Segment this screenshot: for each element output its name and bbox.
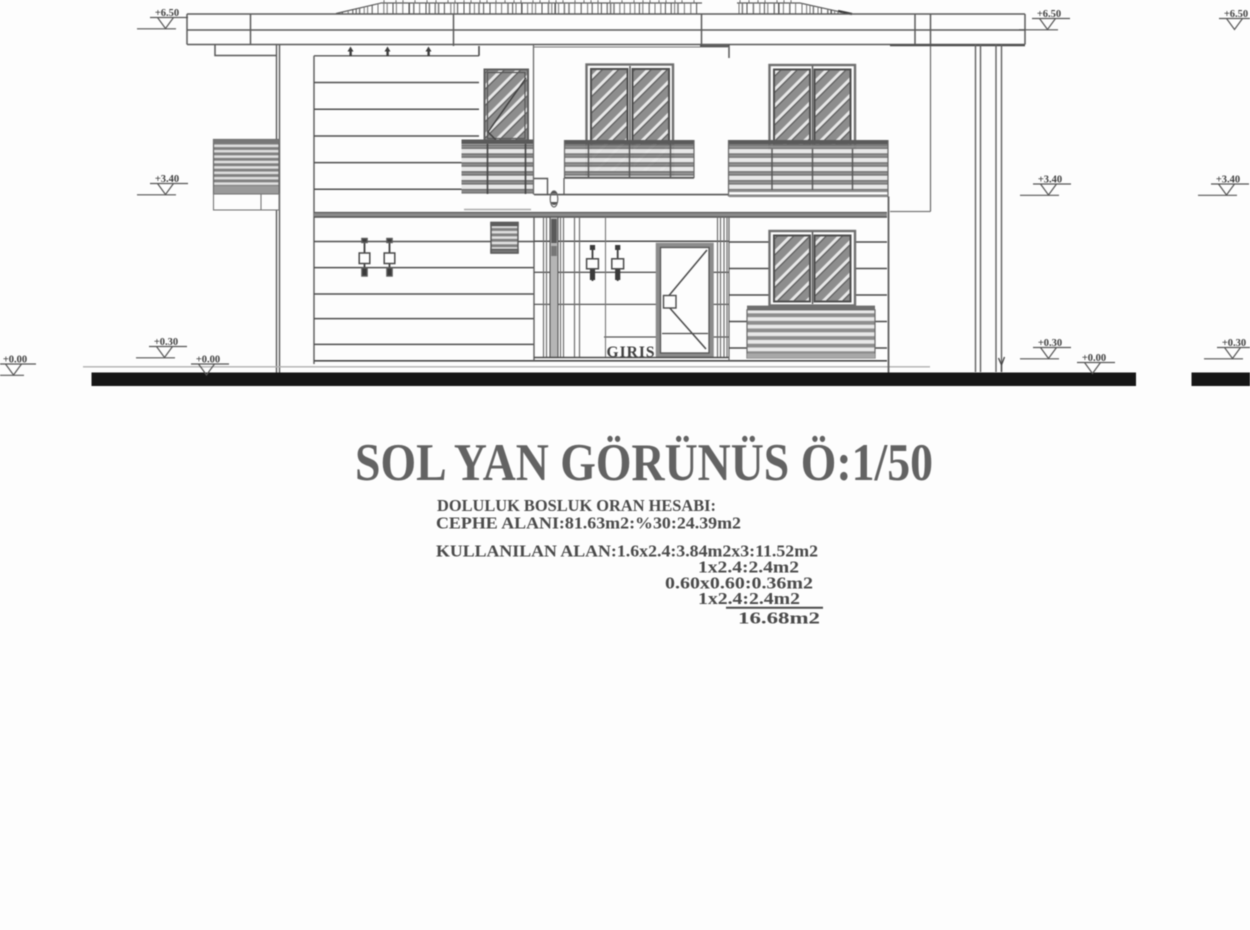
svg-text:GIRIS: GIRIS	[607, 344, 656, 361]
svg-text:1x2.4:2.4m2: 1x2.4:2.4m2	[698, 589, 800, 608]
svg-text:SOL YAN GÖRÜNÜS Ö:1/50: SOL YAN GÖRÜNÜS Ö:1/50	[355, 434, 933, 492]
svg-text:DOLULUK BOSLUK ORAN HESABI:: DOLULUK BOSLUK ORAN HESABI:	[437, 496, 716, 515]
svg-text:16.68m2: 16.68m2	[738, 609, 820, 628]
svg-text:CEPHE ALANI:81.63m2:%30:24.39m: CEPHE ALANI:81.63m2:%30:24.39m2	[436, 514, 741, 533]
